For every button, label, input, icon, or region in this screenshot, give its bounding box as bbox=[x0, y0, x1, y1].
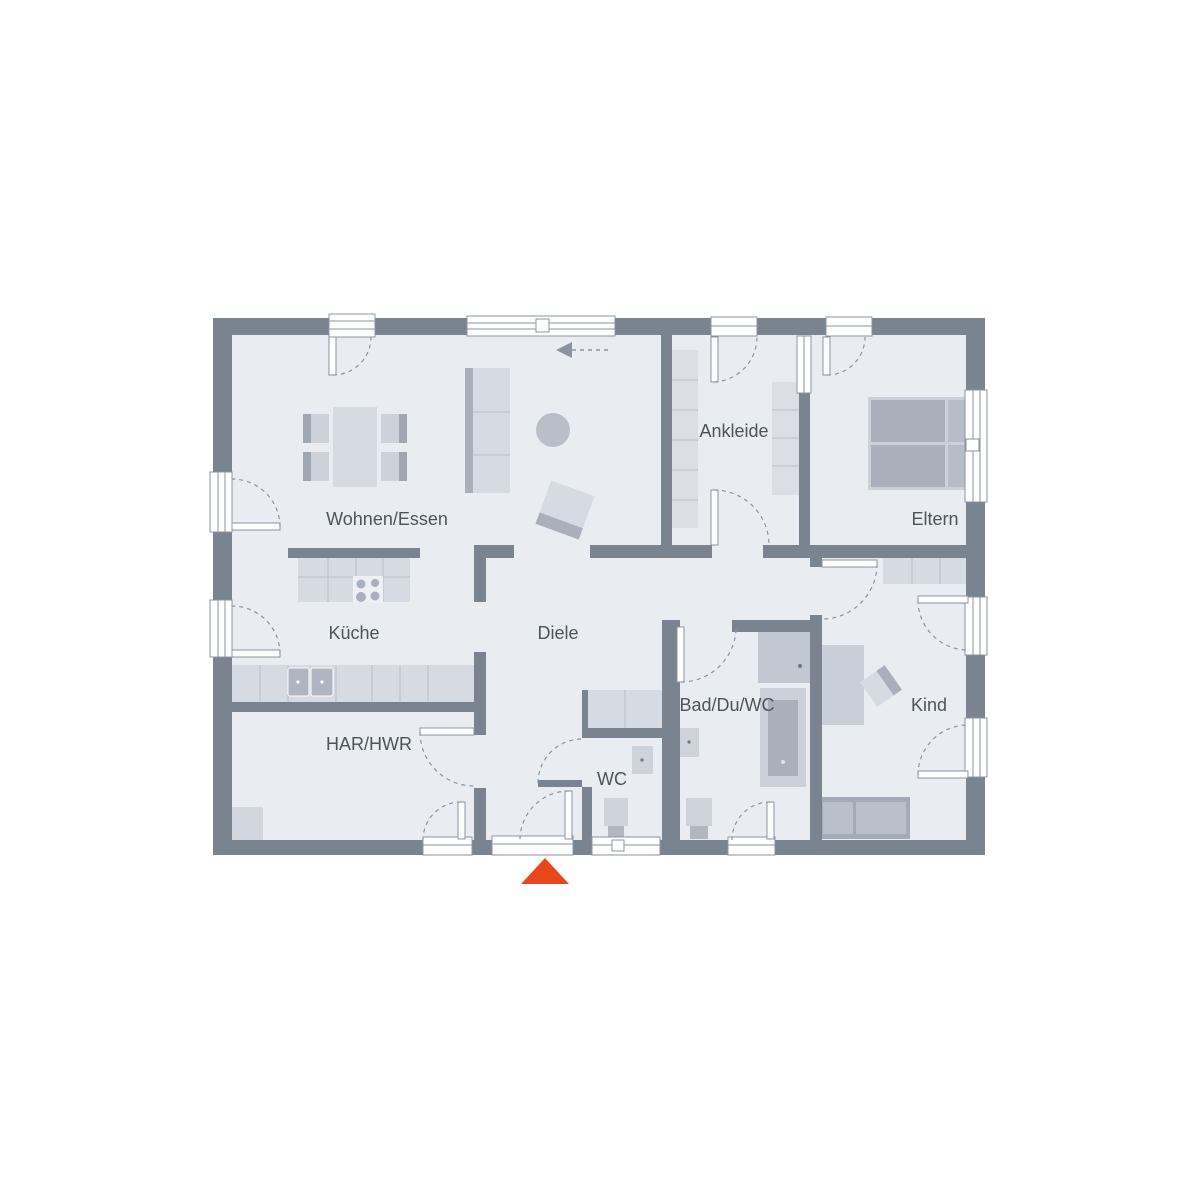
wall-exterior-left bbox=[213, 318, 232, 855]
window-top-living bbox=[329, 314, 375, 337]
entrance-marker-icon bbox=[521, 858, 569, 884]
window-right-kind-upper bbox=[965, 597, 987, 655]
doorway-ankleide-eltern bbox=[797, 336, 811, 393]
double-bed bbox=[868, 397, 968, 490]
sliding-door-handle-icon bbox=[536, 319, 549, 332]
wc-window-handle-icon bbox=[612, 840, 624, 851]
shower bbox=[758, 630, 810, 683]
kind-sofa bbox=[818, 797, 910, 839]
room-label-wc: WC bbox=[597, 769, 627, 789]
wall-kitchen-bar bbox=[288, 548, 420, 558]
room-label-eltern: Eltern bbox=[911, 509, 958, 529]
wc-sink bbox=[632, 746, 653, 774]
window-top-eltern bbox=[826, 317, 872, 336]
window-top-ankleide bbox=[711, 317, 757, 336]
sliding-window-eltern bbox=[965, 390, 987, 502]
kitchen-counter-top bbox=[298, 558, 410, 603]
window-bottom-har bbox=[423, 837, 472, 855]
room-label-har-hwr: HAR/HWR bbox=[326, 734, 412, 754]
wall-diele-stub-h bbox=[474, 545, 514, 558]
wardrobe-right bbox=[772, 382, 800, 495]
sliding-window-handle-icon bbox=[966, 439, 979, 451]
window-left-kitchen bbox=[210, 600, 232, 657]
room-label-kind: Kind bbox=[911, 695, 947, 715]
floorplan-page: Wohnen/Essen Küche Diele HAR/HWR WC Ankl… bbox=[0, 0, 1200, 1200]
floorplan-drawing: Wohnen/Essen Küche Diele HAR/HWR WC Ankl… bbox=[0, 0, 1200, 1200]
wall-wc-north bbox=[582, 728, 662, 738]
window-right-kind-lower bbox=[965, 718, 987, 777]
room-label-diele: Diele bbox=[537, 623, 578, 643]
wall-ankleide-eltern bbox=[799, 393, 810, 545]
wall-diele-stub-v bbox=[474, 558, 486, 602]
room-label-wohnen-essen: Wohnen/Essen bbox=[326, 509, 448, 529]
kitchen-counter-sink bbox=[232, 665, 474, 703]
wall-bad-kind bbox=[810, 615, 822, 840]
room-label-bad-du-wc: Bad/Du/WC bbox=[679, 695, 774, 715]
shelf-unit bbox=[465, 368, 510, 493]
bath-sink bbox=[680, 728, 699, 757]
dining-table bbox=[333, 407, 377, 487]
room-label-kueche: Küche bbox=[328, 623, 379, 643]
wall-kind-stub bbox=[810, 545, 822, 567]
wardrobe-left bbox=[672, 350, 698, 528]
wall-ankleide-west bbox=[661, 335, 672, 545]
wall-diele-north-2 bbox=[763, 545, 985, 558]
room-label-ankleide: Ankleide bbox=[699, 421, 768, 441]
washing-machine bbox=[230, 807, 263, 840]
window-left-living bbox=[210, 472, 232, 532]
wall-har-east-upper bbox=[474, 652, 486, 735]
wall-har-east-lower bbox=[474, 788, 486, 840]
entrance-door bbox=[492, 836, 573, 855]
wall-har-north bbox=[232, 702, 486, 712]
wall-diele-north-1 bbox=[590, 545, 712, 558]
kind-wardrobe bbox=[883, 558, 968, 584]
wall-bad-north bbox=[732, 620, 822, 632]
window-bottom-wc bbox=[592, 837, 660, 855]
wall-wc-west bbox=[582, 787, 592, 840]
round-rug bbox=[536, 413, 570, 447]
kind-bed bbox=[820, 645, 864, 725]
wc-door-leaf bbox=[538, 780, 582, 787]
window-bottom-bad bbox=[728, 837, 775, 855]
sliding-door-top bbox=[467, 316, 615, 336]
